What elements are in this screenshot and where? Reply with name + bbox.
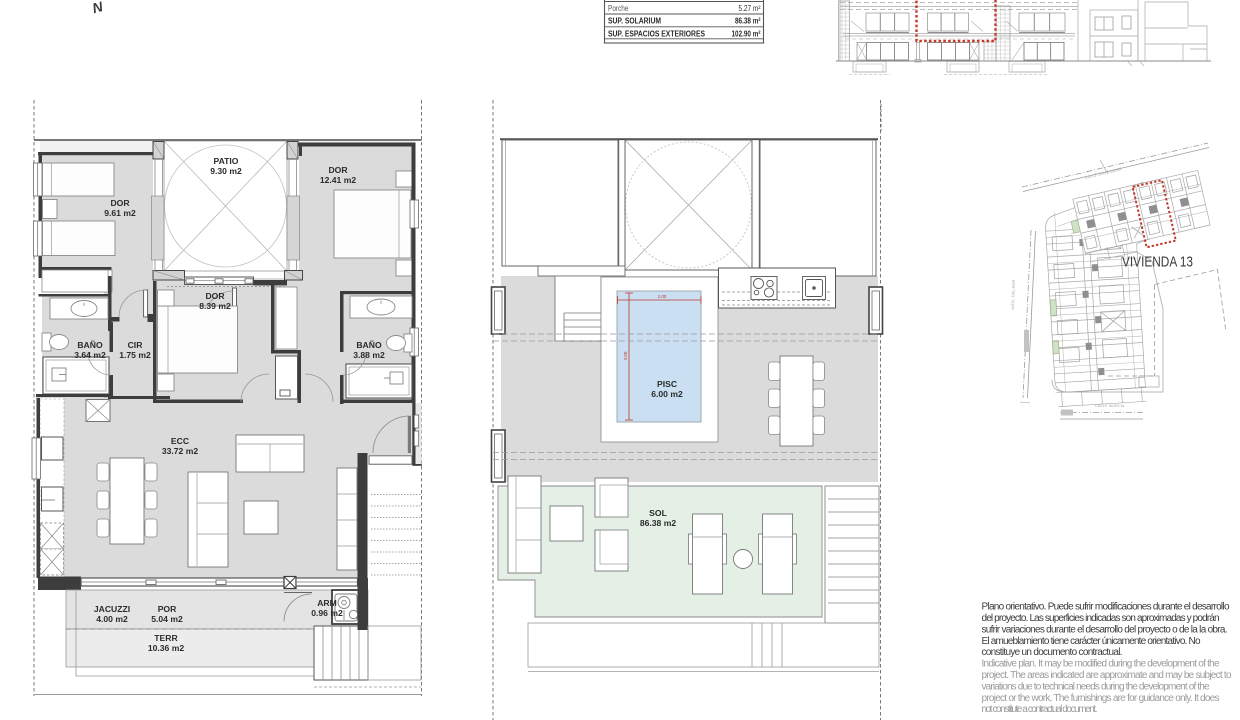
svg-text:JACUZZI: JACUZZI — [94, 604, 130, 614]
svg-text:6.00 m2: 6.00 m2 — [651, 389, 683, 399]
svg-text:5.04 m2: 5.04 m2 — [151, 614, 183, 624]
svg-text:del proyecto. Las superficies: del proyecto. Las superficies indicadas … — [982, 613, 1220, 624]
svg-text:10.36 m2: 10.36 m2 — [148, 643, 185, 653]
svg-text:AVDA. DEL MAR: AVDA. DEL MAR — [1010, 279, 1016, 310]
svg-text:102.90 m²: 102.90 m² — [732, 29, 761, 38]
svg-text:DOR: DOR — [110, 198, 130, 208]
svg-text:4.00 m2: 4.00 m2 — [96, 614, 128, 624]
svg-text:BAÑO: BAÑO — [77, 340, 103, 350]
svg-text:POR: POR — [158, 604, 177, 614]
svg-text:2.00: 2.00 — [658, 294, 667, 299]
svg-text:El amueblamiento tiene carácte: El amueblamiento tiene carácter únicamen… — [982, 636, 1201, 647]
svg-text:sufrir variaciones durante el: sufrir variaciones durante el desarrollo… — [982, 624, 1228, 635]
svg-text:3.64 m2: 3.64 m2 — [74, 350, 106, 360]
svg-text:project or the work. The furni: project or the work. The furnishings are… — [982, 693, 1220, 704]
svg-text:1.75 m2: 1.75 m2 — [119, 350, 151, 360]
svg-text:Plano orientativo. Puede sufri: Plano orientativo. Puede sufrir modifica… — [982, 602, 1230, 613]
svg-text:9.30 m2: 9.30 m2 — [210, 166, 242, 176]
svg-text:TERR: TERR — [154, 633, 178, 643]
svg-text:0.96 m2: 0.96 m2 — [311, 608, 343, 618]
svg-text:3.88 m2: 3.88 m2 — [353, 350, 385, 360]
svg-text:VIVIENDA 13: VIVIENDA 13 — [1122, 254, 1193, 271]
svg-text:variations due to technical ne: variations due to technical needs during… — [982, 681, 1210, 692]
svg-text:constituye un documento contra: constituye un documento contractual. — [982, 647, 1123, 658]
svg-text:ARM: ARM — [317, 598, 337, 608]
svg-text:SUP. SOLARIUM: SUP. SOLARIUM — [608, 17, 661, 26]
svg-text:86.38 m2: 86.38 m2 — [640, 518, 677, 528]
svg-text:CIR: CIR — [128, 340, 144, 350]
svg-text:SUP. ESPACIOS EXTERIORES: SUP. ESPACIOS EXTERIORES — [608, 29, 705, 38]
svg-text:5.27 m²: 5.27 m² — [739, 4, 761, 13]
svg-text:ECC: ECC — [171, 436, 189, 446]
svg-text:Porche: Porche — [608, 4, 629, 13]
svg-text:12.41 m2: 12.41 m2 — [320, 175, 357, 185]
svg-text:Indicative plan. It may be mod: Indicative plan. It may be modified duri… — [982, 659, 1220, 670]
svg-text:DOR: DOR — [328, 165, 348, 175]
svg-text:8.39 m2: 8.39 m2 — [199, 301, 231, 311]
svg-text:DOR: DOR — [205, 291, 225, 301]
svg-text:SOL: SOL — [649, 508, 667, 518]
svg-text:33.72 m2: 33.72 m2 — [162, 446, 199, 456]
svg-text:PATIO: PATIO — [214, 156, 239, 166]
svg-text:project. The areas indicated a: project. The areas indicated are approxi… — [982, 670, 1232, 681]
svg-text:not constitute a contractual d: not constitute a contractual document. — [982, 704, 1098, 715]
svg-text:PISC: PISC — [657, 379, 677, 389]
svg-text:86.38 m²: 86.38 m² — [735, 17, 761, 26]
svg-text:3.00: 3.00 — [623, 351, 628, 360]
svg-text:9.61 m2: 9.61 m2 — [104, 208, 136, 218]
svg-text:BAÑO: BAÑO — [356, 340, 382, 350]
